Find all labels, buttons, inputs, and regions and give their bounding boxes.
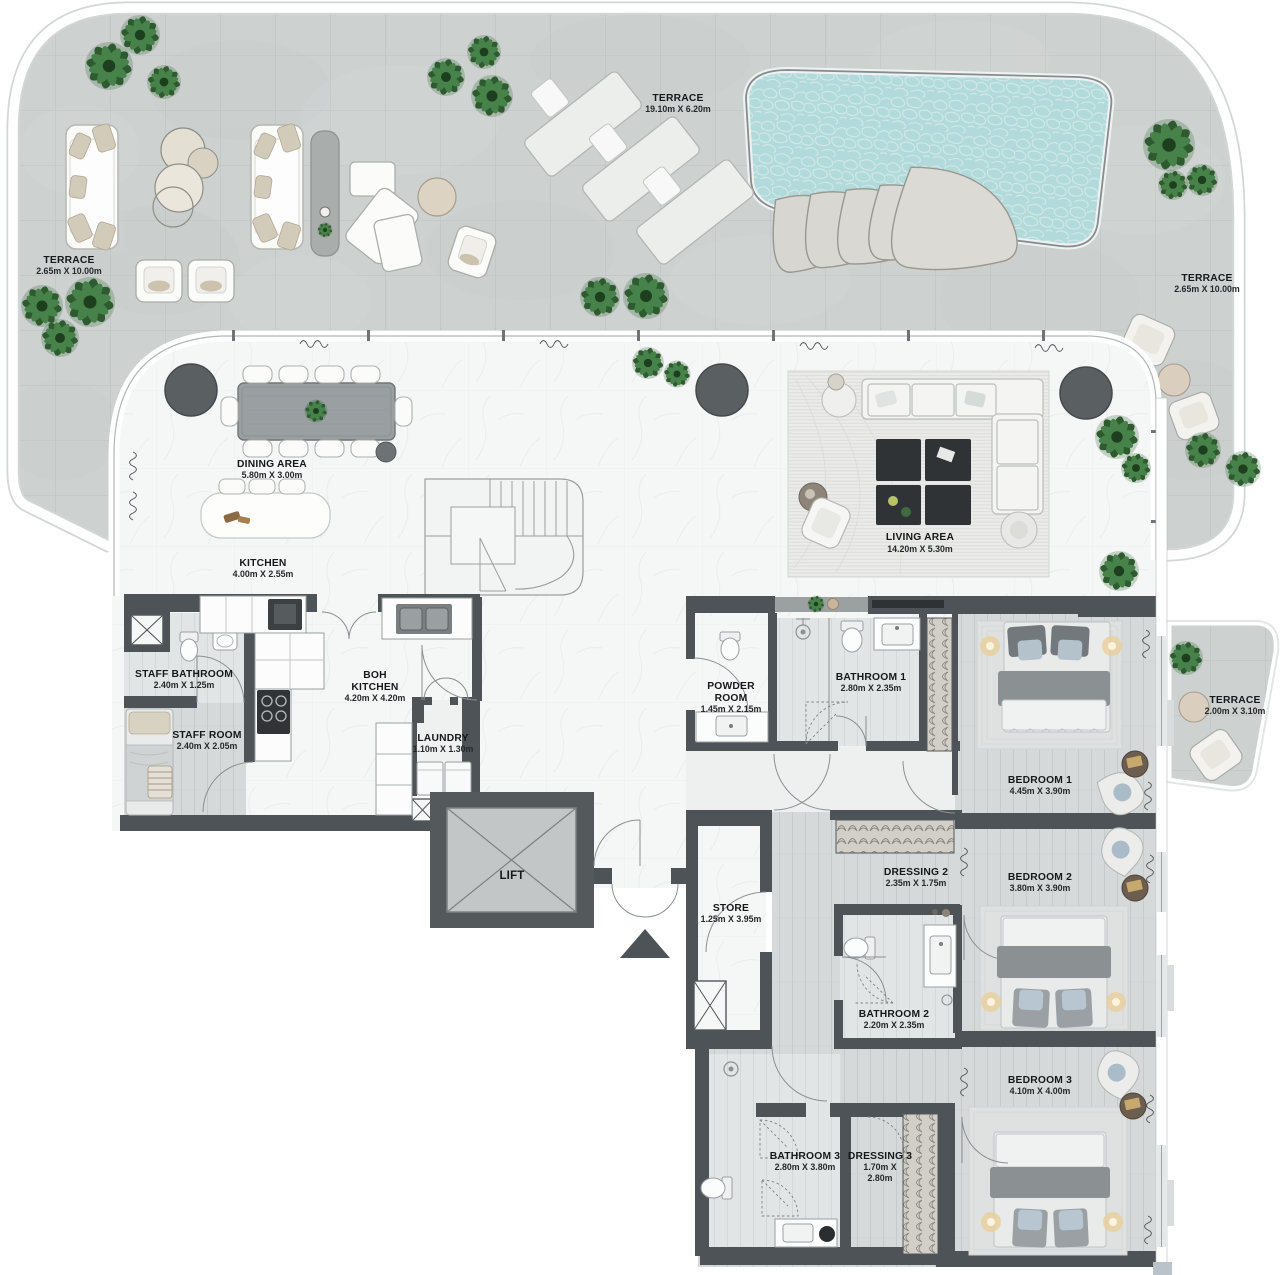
svg-text:STAFF BATHROOM: STAFF BATHROOM	[135, 669, 233, 680]
svg-text:DINING AREA: DINING AREA	[237, 459, 307, 470]
svg-text:3.80m X 3.90m: 3.80m X 3.90m	[1010, 883, 1071, 893]
svg-text:BEDROOM 2: BEDROOM 2	[1008, 872, 1072, 883]
svg-text:1.10m X 1.30m: 1.10m X 1.30m	[413, 744, 474, 754]
svg-text:2.80m X 3.80m: 2.80m X 3.80m	[775, 1162, 836, 1172]
svg-text:TERRACE: TERRACE	[43, 255, 94, 266]
svg-text:TERRACE: TERRACE	[652, 93, 703, 104]
svg-text:KITCHEN: KITCHEN	[239, 558, 286, 569]
svg-text:DRESSING 3: DRESSING 3	[848, 1151, 912, 1162]
svg-text:19.10m X 6.20m: 19.10m X 6.20m	[645, 104, 711, 114]
svg-text:4.10m X 4.00m: 4.10m X 4.00m	[1010, 1086, 1071, 1096]
svg-text:BEDROOM 1: BEDROOM 1	[1008, 775, 1072, 786]
svg-text:BOH: BOH	[363, 670, 386, 681]
svg-text:2.40m X 2.05m: 2.40m X 2.05m	[177, 741, 238, 751]
svg-text:LAUNDRY: LAUNDRY	[417, 733, 468, 744]
svg-text:BEDROOM 3: BEDROOM 3	[1008, 1075, 1072, 1086]
svg-text:4.20m X 4.20m: 4.20m X 4.20m	[345, 693, 406, 703]
svg-text:DRESSING 2: DRESSING 2	[884, 867, 948, 878]
svg-text:2.80m: 2.80m	[868, 1173, 893, 1183]
svg-text:BATHROOM 1: BATHROOM 1	[836, 672, 907, 683]
svg-text:POWDER: POWDER	[707, 681, 755, 692]
svg-text:2.40m X 1.25m: 2.40m X 1.25m	[154, 680, 215, 690]
svg-text:4.45m X 3.90m: 4.45m X 3.90m	[1010, 786, 1071, 796]
svg-text:TERRACE: TERRACE	[1209, 695, 1260, 706]
svg-text:1.70m X: 1.70m X	[863, 1162, 896, 1172]
svg-text:TERRACE: TERRACE	[1181, 273, 1232, 284]
svg-text:LIFT: LIFT	[499, 870, 524, 882]
svg-text:KITCHEN: KITCHEN	[351, 682, 398, 693]
svg-text:LIVING AREA: LIVING AREA	[886, 532, 955, 543]
svg-text:STAFF ROOM: STAFF ROOM	[172, 730, 241, 741]
svg-text:1.45m X 2.15m: 1.45m X 2.15m	[701, 704, 762, 714]
svg-text:2.35m X 1.75m: 2.35m X 1.75m	[886, 878, 947, 888]
svg-text:2.65m X 10.00m: 2.65m X 10.00m	[36, 266, 102, 276]
svg-text:4.00m X 2.55m: 4.00m X 2.55m	[233, 569, 294, 579]
svg-text:2.80m X 2.35m: 2.80m X 2.35m	[841, 683, 902, 693]
svg-text:ROOM: ROOM	[715, 693, 748, 704]
svg-text:BATHROOM 3: BATHROOM 3	[770, 1151, 841, 1162]
svg-text:14.20m X 5.30m: 14.20m X 5.30m	[887, 544, 953, 554]
svg-text:2.20m X 2.35m: 2.20m X 2.35m	[864, 1020, 925, 1030]
svg-text:2.65m X 10.00m: 2.65m X 10.00m	[1174, 284, 1240, 294]
svg-text:STORE: STORE	[713, 903, 749, 914]
svg-text:BATHROOM 2: BATHROOM 2	[859, 1009, 930, 1020]
svg-text:1.25m X 3.95m: 1.25m X 3.95m	[701, 914, 762, 924]
svg-text:2.00m X 3.10m: 2.00m X 3.10m	[1205, 706, 1266, 716]
